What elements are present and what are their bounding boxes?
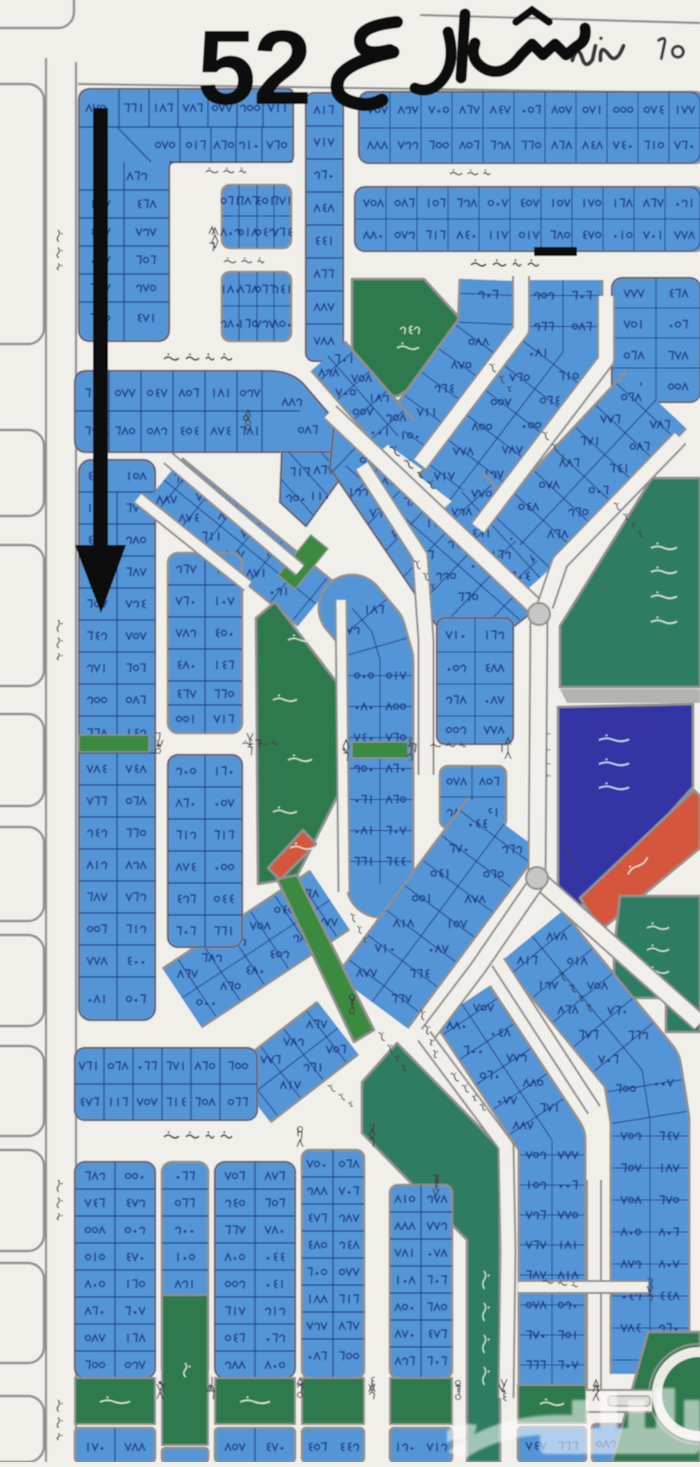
svg-text:52: 52 bbox=[197, 9, 309, 127]
